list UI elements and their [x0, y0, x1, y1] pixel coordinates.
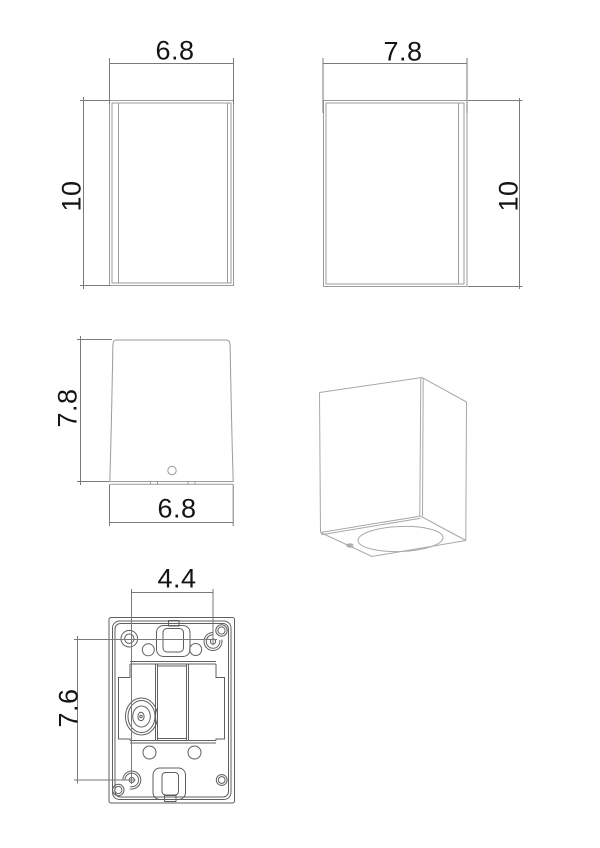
side-height-dimension-label: 10	[496, 180, 523, 211]
front-view-drawing	[110, 101, 234, 286]
technical-drawing-page: 6.8 10 7.8 10 7.8 6.8 4.4 7.6	[0, 0, 600, 848]
top-view-dimensions	[77, 336, 234, 526]
side-view-dimensions	[323, 58, 523, 289]
side-width-dimension-label: 7.8	[383, 39, 422, 66]
front-width-dimension-label: 6.8	[155, 38, 194, 65]
side-view-drawing	[324, 101, 468, 287]
top-depth-dimension-label: 7.8	[55, 388, 82, 427]
front-height-dimension-label: 10	[59, 180, 86, 211]
perspective-view-drawing	[320, 378, 467, 557]
mount-hole-spacing-v-label: 7.6	[56, 688, 83, 727]
mount-hole-spacing-h-label: 4.4	[157, 566, 196, 593]
top-view-drawing	[110, 340, 233, 484]
drawing-linework	[0, 0, 600, 848]
top-width-dimension-label: 6.8	[157, 496, 196, 523]
back-mounting-view-dimensions	[74, 589, 217, 784]
front-view-dimensions	[80, 58, 234, 289]
back-mounting-view-drawing	[109, 618, 235, 804]
